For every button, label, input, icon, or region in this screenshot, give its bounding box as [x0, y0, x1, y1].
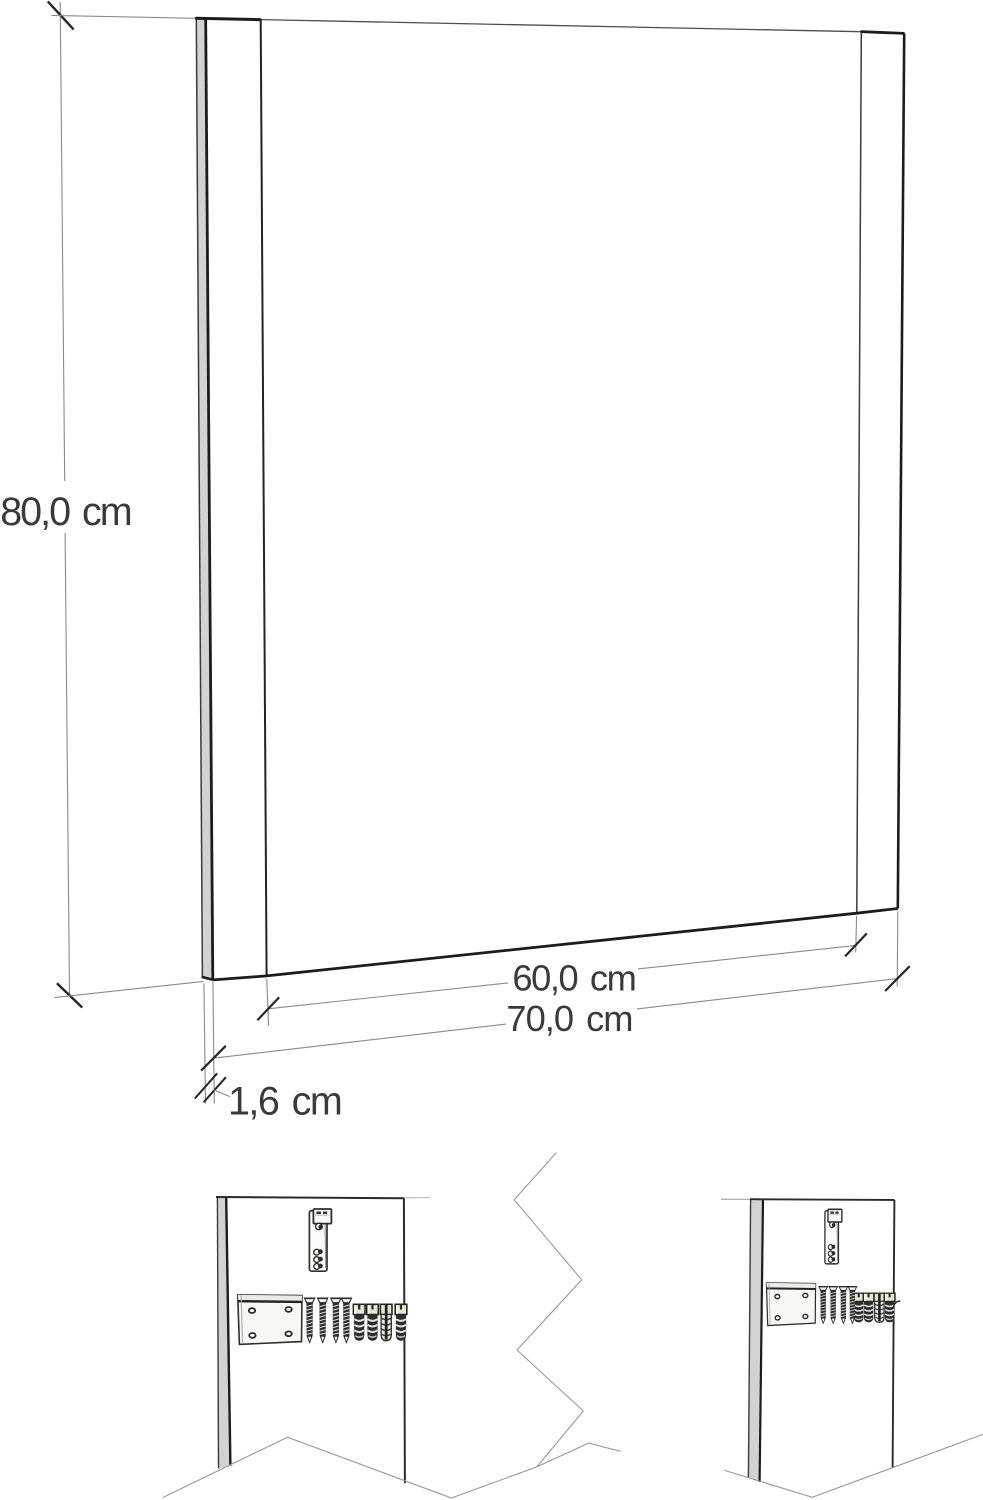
svg-text:60,0 cm: 60,0 cm: [512, 958, 635, 999]
svg-text:80,0 cm: 80,0 cm: [0, 490, 131, 534]
svg-text:70,0 cm: 70,0 cm: [506, 998, 632, 1039]
svg-text:1,6 cm: 1,6 cm: [228, 1079, 341, 1123]
